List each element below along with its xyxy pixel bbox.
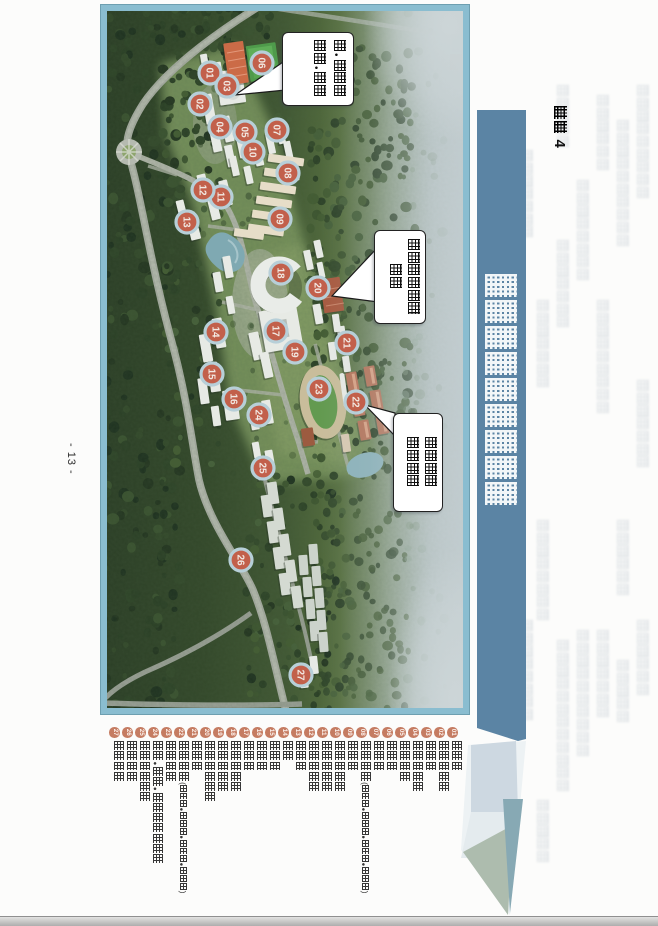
svg-text:01: 01 (204, 67, 215, 79)
svg-text:25: 25 (257, 462, 268, 474)
svg-text:17: 17 (270, 325, 281, 337)
svg-text:03: 03 (221, 80, 232, 92)
svg-text:06: 06 (256, 57, 267, 69)
svg-text:18: 18 (275, 267, 286, 279)
svg-text:22: 22 (350, 396, 361, 408)
svg-text:02: 02 (194, 98, 205, 110)
svg-text:27: 27 (295, 669, 306, 681)
svg-text:12: 12 (197, 184, 208, 196)
svg-text:09: 09 (274, 213, 285, 225)
svg-text:26: 26 (235, 554, 246, 566)
svg-text:08: 08 (282, 167, 293, 179)
svg-text:20: 20 (312, 282, 323, 294)
svg-text:23: 23 (313, 383, 324, 395)
svg-text:16: 16 (228, 393, 239, 405)
svg-text:11: 11 (215, 192, 226, 203)
svg-text:24: 24 (253, 409, 264, 421)
svg-text:19: 19 (289, 346, 300, 358)
svg-text:15: 15 (206, 368, 217, 380)
svg-text:21: 21 (341, 337, 352, 349)
svg-text:07: 07 (271, 124, 282, 136)
svg-text:14: 14 (210, 326, 221, 338)
svg-text:04: 04 (214, 121, 225, 133)
svg-text:13: 13 (181, 216, 192, 228)
svg-text:05: 05 (239, 126, 250, 138)
svg-text:10: 10 (247, 146, 258, 158)
